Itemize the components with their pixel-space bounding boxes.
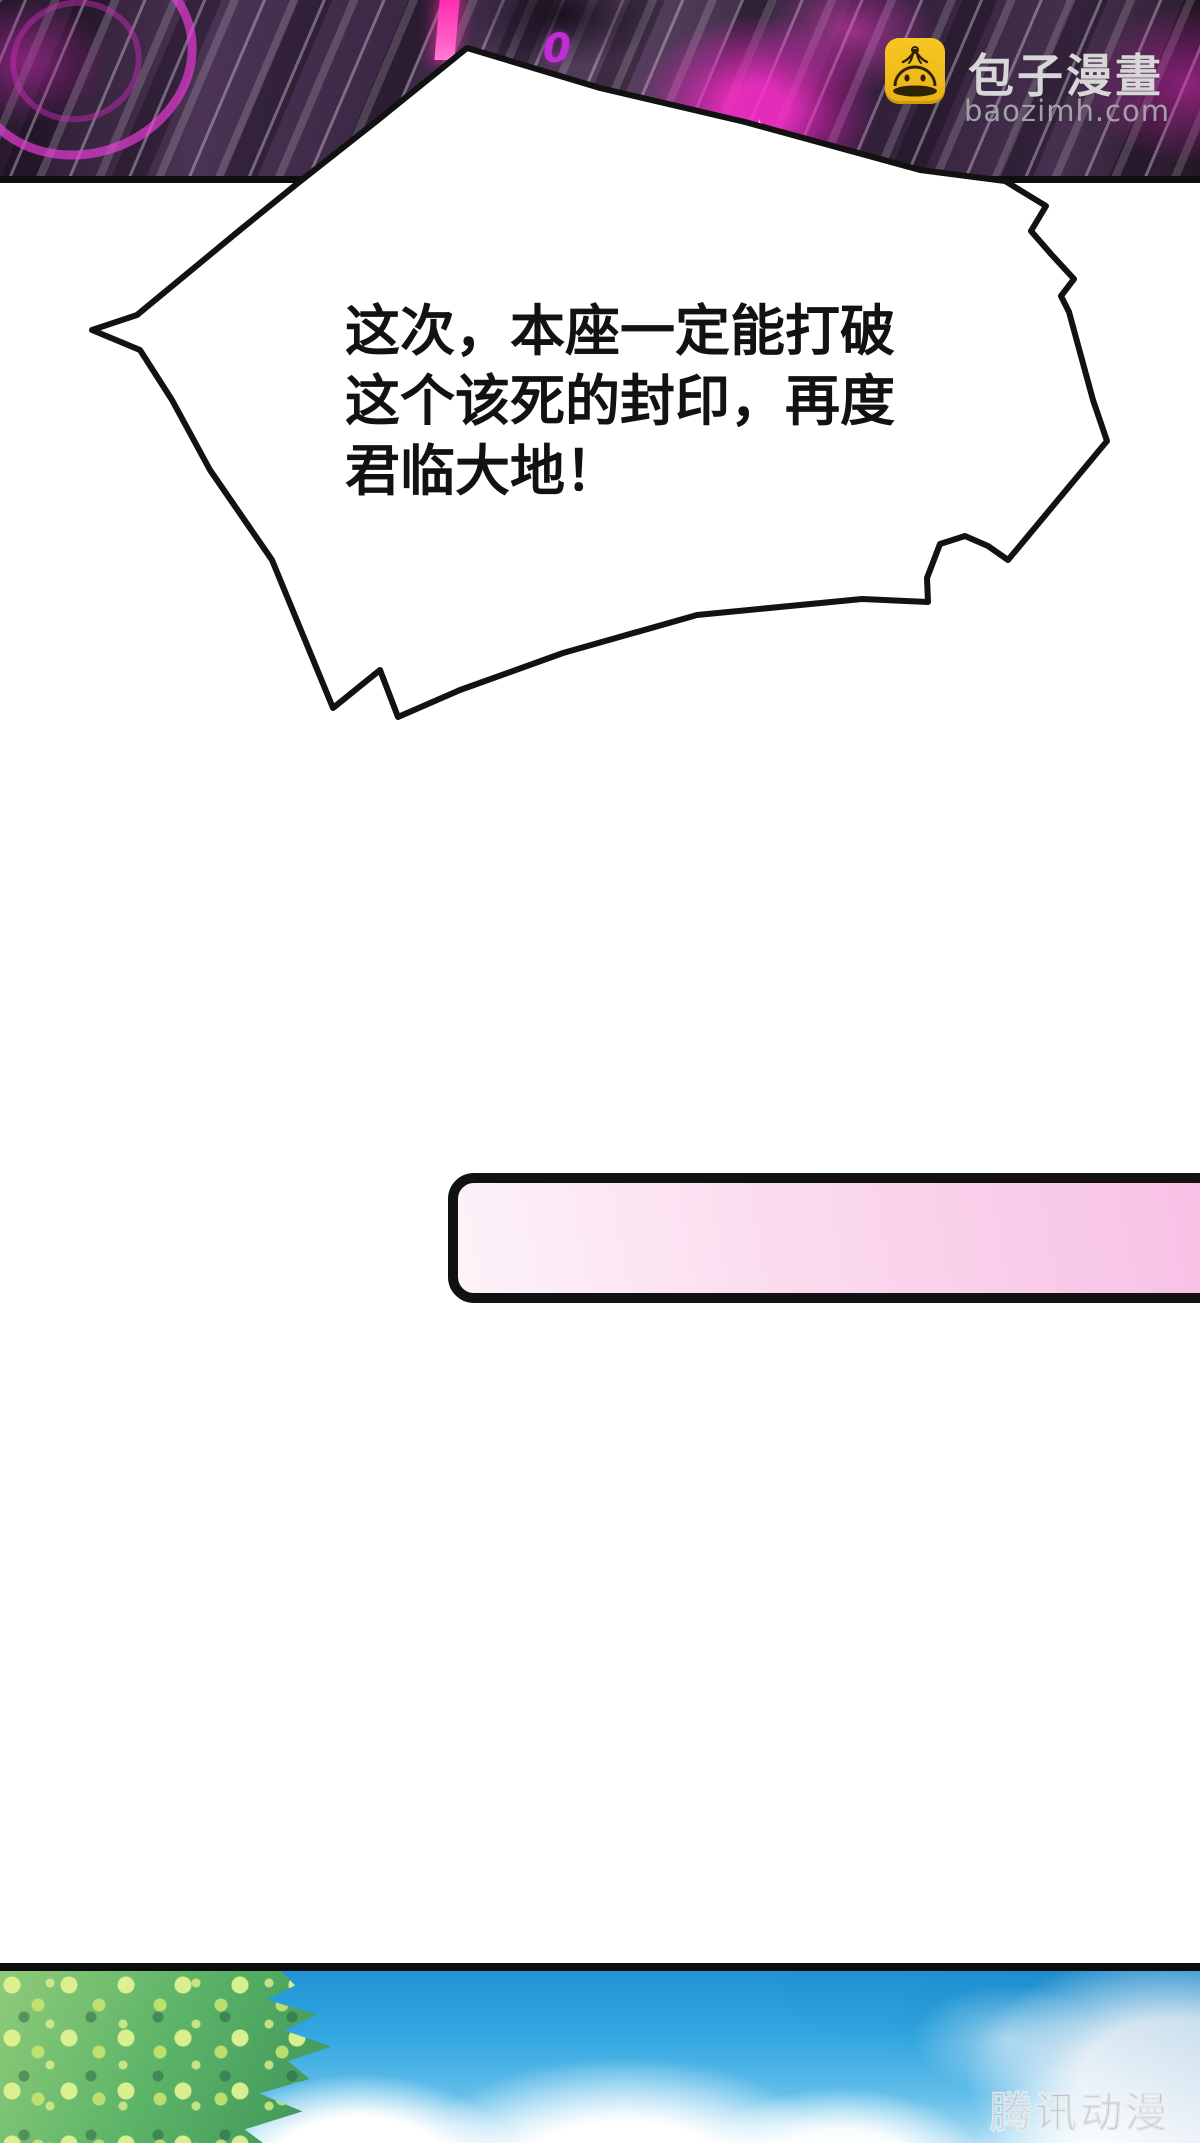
pink-energy-beam (434, 0, 459, 60)
speech-line-2: 这个该死的封印，再度 (345, 366, 925, 436)
baozi-bun-icon (885, 38, 945, 104)
magenta-numeral: 0 (543, 26, 571, 72)
magenta-ring-large (0, 0, 224, 189)
sparkle-icon: ✦ (753, 116, 766, 134)
magenta-ring-small (0, 0, 155, 136)
tencent-comics-watermark: 腾讯动漫 (990, 2079, 1170, 2140)
comic-page: 0 ✦ ✦ 这次，本座一定能打破 这个该死的封印，再度 君临大地！ 包子漫畫 (0, 0, 1200, 2143)
speech-line-1: 这次，本座一定能打破 (345, 296, 925, 366)
scenery-panel: 腾讯动漫 (0, 1963, 1200, 2143)
sparkle-icon: ✦ (770, 138, 779, 151)
pink-gradient-banner (448, 1173, 1200, 1303)
brand-domain: baozimh.com (964, 94, 1200, 128)
speech-bubble-text: 这次，本座一定能打破 这个该死的封印，再度 君临大地！ (345, 296, 925, 506)
speech-line-3: 君临大地！ (345, 436, 925, 506)
